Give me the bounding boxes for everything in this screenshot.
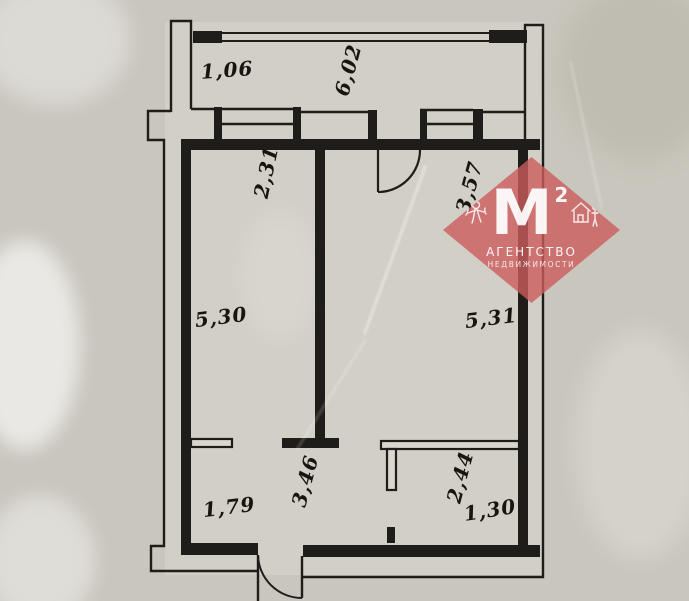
floor-plan-drawing [0,0,689,601]
wall-left [181,139,191,553]
wall-bottom-right [303,545,540,557]
window-pier [214,107,222,139]
scanned-floor-plan: 1,06 6,02 2,31 3,57 5,30 5,31 1,79 3,46 … [0,0,689,601]
balcony-end-block-left [193,31,222,43]
partition-hall-left [191,439,232,447]
balcony-end-block-right [489,30,527,43]
window-pier [473,109,483,141]
partition-bathroom [381,441,519,449]
wall-central [315,150,325,438]
window-pier [293,107,301,139]
window-pier [420,109,427,139]
wall-right [518,144,528,557]
bath-door-jamb-upper [387,449,396,490]
wall-top [181,139,540,150]
wall-central-cap [282,438,339,448]
plan-paper-area [165,22,543,575]
bath-door-jamb-lower [387,527,395,543]
wall-bottom-left [181,543,258,555]
window-pier [368,110,377,139]
